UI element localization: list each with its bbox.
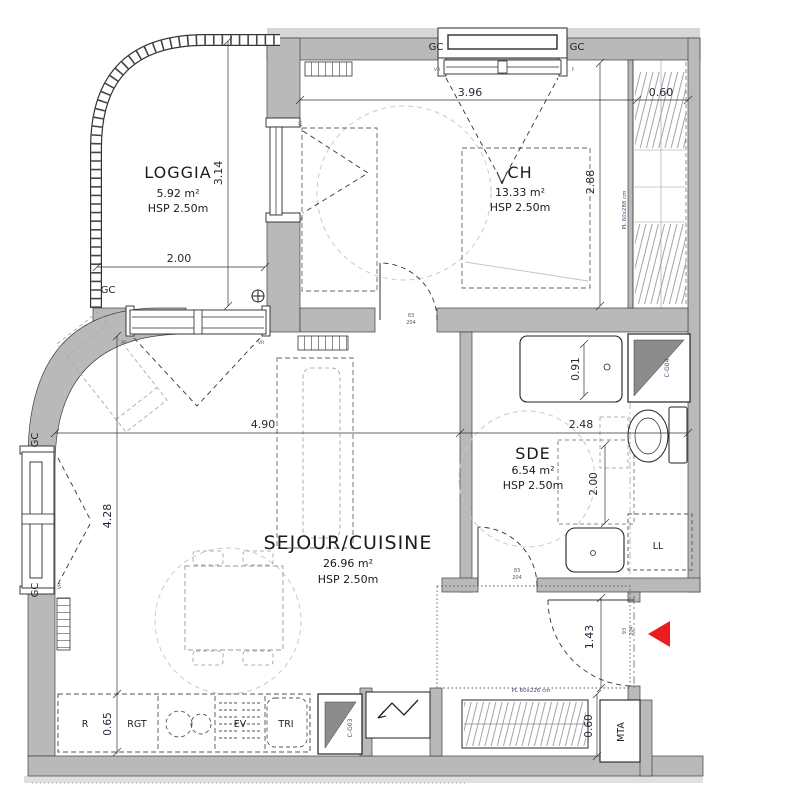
fridge-label: R xyxy=(82,719,89,730)
low-closet xyxy=(462,700,588,748)
shower-drain xyxy=(604,364,610,370)
door-tag-ch-w: 83 xyxy=(408,313,414,319)
sink-label: EV xyxy=(234,719,247,730)
toilet-tank xyxy=(669,407,687,463)
duct-top-label: C-G04 xyxy=(664,358,671,377)
drain-symbol xyxy=(252,290,264,302)
room-ceiling-ch: HSP 2.50m xyxy=(490,201,551,214)
room-label-sde: SDE xyxy=(515,444,551,463)
chair xyxy=(193,551,223,565)
closet-tall-label: PL 60x288 cm xyxy=(622,190,628,229)
dim-loggia-depth: 3.14 xyxy=(212,161,225,186)
dim-sde-width: 2.48 xyxy=(569,418,594,431)
dim-closet-low-depth: 0.60 xyxy=(583,714,595,737)
dim-ch-height: 2.88 xyxy=(584,170,597,195)
gc-label: GC xyxy=(429,42,444,53)
dim-entry-width: 1.43 xyxy=(583,625,596,650)
room-area-ch: 13.33 m² xyxy=(495,186,545,199)
svg-text:93: 93 xyxy=(622,628,628,634)
dim-closet-depth: 0.60 xyxy=(649,86,674,99)
room-label-sejour: SEJOUR/CUISINE xyxy=(264,532,433,554)
toilet-zone xyxy=(600,417,628,468)
dim-loggia-width: 2.00 xyxy=(167,252,192,265)
dining-table xyxy=(185,566,283,650)
cooktop-burner xyxy=(166,711,192,737)
window-loggia xyxy=(126,306,270,336)
dim-ch-width: 3.96 xyxy=(458,86,483,99)
washbasin xyxy=(566,528,624,572)
pf-tag: PF xyxy=(121,340,127,346)
vr-tag: VR xyxy=(258,340,265,346)
dim-shower-width: 0.91 xyxy=(570,357,582,380)
f-tag: F xyxy=(572,67,575,73)
window-left xyxy=(20,446,54,594)
window-ch-top xyxy=(438,28,567,76)
cooktop-burner xyxy=(191,714,211,734)
room-ceiling-sde: HSP 2.50m xyxy=(503,479,564,492)
gc-label: GC xyxy=(30,583,41,598)
room-ceiling-sejour: HSP 2.50m xyxy=(318,573,379,586)
dim-sde-clear: 2.00 xyxy=(588,472,600,495)
chair xyxy=(243,651,273,665)
room-area-sde: 6.54 m² xyxy=(511,464,554,477)
meter-label: MTA xyxy=(616,722,627,742)
pf-tag: PF xyxy=(299,216,305,222)
storage-label: RGT xyxy=(127,719,147,730)
kitchen-counter xyxy=(58,694,310,752)
room-ceiling-loggia: HSP 2.50m xyxy=(148,202,209,215)
floor-plan: LOGGIA 5.92 m² HSP 2.50m CH 13.33 m² HSP… xyxy=(0,0,786,800)
duct-bottom-label: C-G03 xyxy=(347,718,354,737)
door-tag-sde-w: 83 xyxy=(514,568,520,574)
room-area-loggia: 5.92 m² xyxy=(156,187,199,200)
svg-text:204: 204 xyxy=(629,626,635,636)
island-top xyxy=(303,368,340,538)
door-tag-entry: 93 204 xyxy=(622,626,635,636)
room-label-ch: CH xyxy=(507,163,532,182)
washer-label: LL xyxy=(653,541,664,552)
waste-label: TRI xyxy=(277,719,293,730)
wardrobe xyxy=(302,128,377,291)
room-label-loggia: LOGGIA xyxy=(144,163,211,182)
gc-label: GC xyxy=(30,433,41,448)
vr-tag: VR xyxy=(434,67,441,73)
dim-sejour-width: 4.90 xyxy=(251,418,276,431)
door-tag-ch-h: 204 xyxy=(406,320,416,326)
room-area-sejour: 26.96 m² xyxy=(323,557,373,570)
vr-tag: VR xyxy=(298,120,304,127)
gc-label: GC xyxy=(101,285,116,296)
vr-tag: VR xyxy=(57,582,63,589)
kitchen-island xyxy=(277,358,353,548)
chair xyxy=(193,651,223,665)
gc-label: GC xyxy=(570,42,585,53)
closet-low-label: PL 60x226 cm xyxy=(511,688,550,694)
floor-plan-page: LOGGIA 5.92 m² HSP 2.50m CH 13.33 m² HSP… xyxy=(0,0,786,800)
walls xyxy=(28,38,703,776)
dim-counter-depth: 0.65 xyxy=(102,712,114,735)
door-tag-sde-h: 204 xyxy=(512,575,522,581)
electric-panel xyxy=(366,692,430,738)
entry-arrow xyxy=(648,621,670,647)
door-loggia-ch xyxy=(266,118,300,222)
dim-sejour-height: 4.28 xyxy=(101,504,114,529)
